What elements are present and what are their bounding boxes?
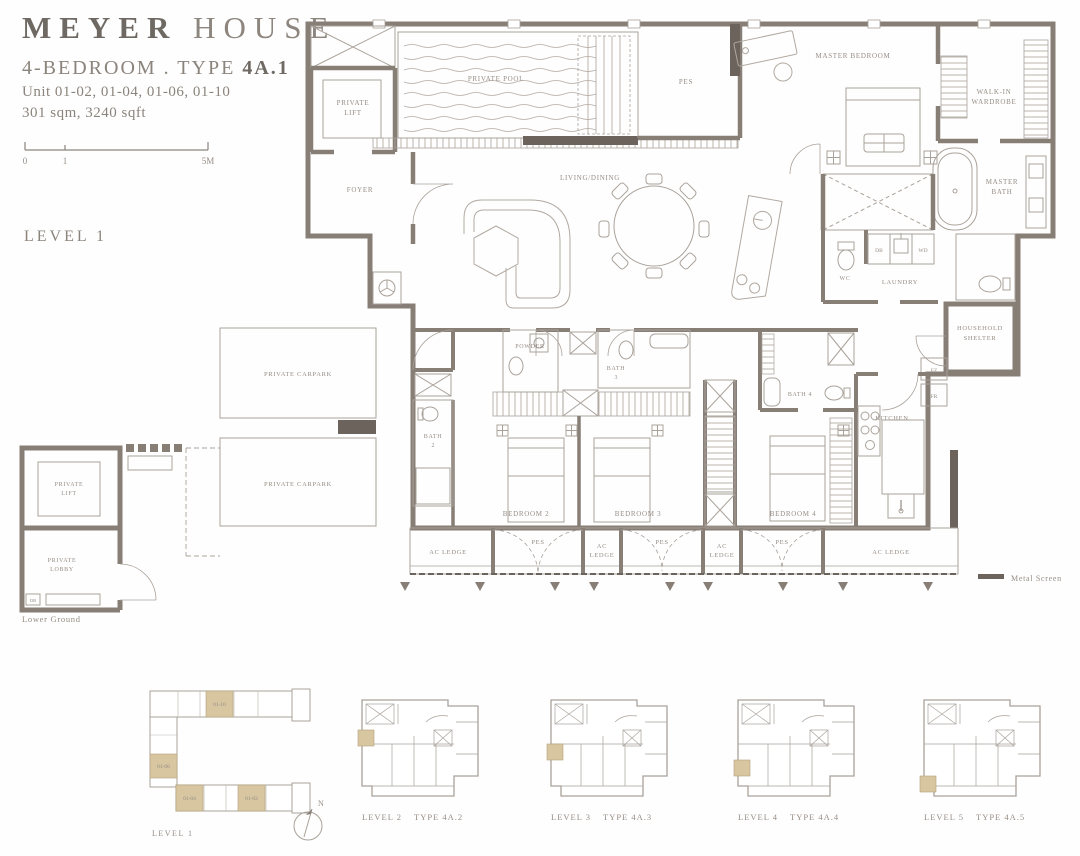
coffee-table-icon (474, 226, 518, 276)
label-pes-3: PES (775, 539, 788, 546)
floor-plan-page: MEYER HOUSE 4-BEDROOM . TYPE 4A.1 Unit 0… (0, 0, 1080, 856)
master-bedroom-door-arc (790, 144, 820, 174)
room-label-household-1: HOUSEHOLD (957, 325, 1003, 332)
unit-numbers: Unit 01-02, 01-04, 01-06, 01-10 (22, 84, 230, 101)
unit-area: 301 sqm, 3240 sqft (22, 105, 146, 122)
label-ac-2b: LEDGE (590, 552, 615, 559)
kitchen-door-arc (882, 374, 918, 410)
mini-2-level: LEVEL 2 (362, 812, 402, 822)
label-carpark-2: PRIVATE CARPARK (264, 481, 332, 488)
entry-closet (373, 272, 401, 304)
scale-bar: 0 1 5M (22, 138, 222, 172)
unit-type-prefix: 4-BEDROOM . TYPE (22, 57, 242, 79)
label-ac-3a: AC (717, 543, 727, 550)
label-lg-lift-2: LIFT (61, 491, 76, 497)
bottom-band-dividers (493, 528, 823, 574)
room-label-pes-top: PES (679, 78, 693, 86)
powder-room (503, 330, 558, 392)
room-label-master-bath-2: BATH (991, 188, 1012, 196)
bath4-shelf (762, 334, 774, 374)
mini-3-level: LEVEL 3 (551, 812, 591, 822)
room-label-bath3-1: BATH (607, 366, 625, 372)
unit-type-title: 4-BEDROOM . TYPE 4A.1 (22, 57, 290, 80)
lg-lobby-door-arc (120, 564, 156, 600)
second-wc (956, 234, 1015, 300)
closet-walls (823, 174, 933, 230)
label-lg-lobby-2: LOBBY (50, 567, 74, 573)
mini-5-unit-marker (920, 776, 936, 792)
mini-2-type: TYPE 4A.2 (414, 812, 463, 822)
closet-shaft (823, 174, 933, 230)
room-label-walk-in-2: WARDROBE (972, 98, 1017, 106)
label-wd: WD (918, 248, 927, 254)
lg-console (128, 456, 172, 470)
label-db: DB (875, 248, 883, 254)
label-lg-lobby-1: PRIVATE (48, 558, 77, 564)
band-shaft (563, 390, 598, 416)
powder-shaft (570, 332, 596, 354)
north-label: N (318, 799, 324, 808)
key-unit-01-04: 01-04 (183, 796, 196, 802)
master-bed-icon (846, 88, 920, 166)
wardrobe-unit-left (941, 56, 967, 118)
label-fr: FR (931, 394, 938, 400)
dining-table-icon (599, 174, 709, 278)
scale-tick-1: 1 (63, 156, 68, 166)
room-label-master-bedroom: MASTER BEDROOM (816, 52, 891, 60)
laundry-walls (823, 230, 938, 302)
mini-5-level: LEVEL 5 (924, 812, 964, 822)
desk-icon (734, 31, 798, 67)
lg-lift-cabin (38, 462, 100, 516)
room-label-master-bath-1: MASTER (986, 178, 1019, 186)
bath4-walls (760, 330, 858, 410)
mini-plan-level-3: LEVEL 3 TYPE 4A.3 (545, 692, 680, 832)
mini-3-type: TYPE 4A.3 (603, 812, 652, 822)
services-column (705, 380, 735, 526)
mini-4-level: LEVEL 4 (738, 812, 778, 822)
mini-plan-level-2: LEVEL 2 TYPE 4A.2 (356, 692, 491, 832)
bed4-icon (770, 436, 825, 521)
wc-toilet-icon (838, 242, 854, 270)
console-icon (731, 196, 783, 304)
lg-bench (26, 594, 100, 605)
mini-3-unit-marker (547, 744, 563, 760)
bedroom-divider-walls (453, 400, 579, 528)
key-unit-01-06: 01-06 (157, 764, 170, 770)
label-pes-2: PES (655, 539, 668, 546)
lower-ground-plan: PRIVATE CARPARK PRIVATE CARPARK PRIVATE … (10, 320, 405, 625)
lg-hatch-squares (126, 444, 182, 452)
room-label-bath2-1: BATH (424, 434, 442, 440)
room-label-laundry: LAUNDRY (882, 279, 918, 286)
key-plan: 01-10 01-06 01-04 01-02 LEVEL 1 N (138, 683, 338, 853)
room-label-foyer: FOYER (347, 186, 373, 194)
metal-screen-segment-pool (523, 136, 638, 145)
room-label-walk-in-1: WALK-IN (977, 88, 1012, 96)
mini-4-unit-marker (734, 760, 750, 776)
room-label-bath4: BATH 4 (788, 392, 812, 398)
pes-curtain-arcs (493, 530, 823, 573)
bedroom2-wardrobe (493, 392, 563, 416)
metal-screen-segment-kitchen (950, 450, 958, 528)
scale-tick-0: 0 (23, 156, 28, 166)
key-unit-01-02: 01-02 (245, 796, 258, 802)
desk-chair-icon (774, 63, 792, 81)
room-label-bedroom4: BEDROOM 4 (770, 510, 817, 518)
bath4-shaft (828, 333, 854, 365)
label-ac-ledge-1: AC LEDGE (429, 549, 467, 556)
label-ac-3b: LEDGE (710, 552, 735, 559)
hob-icon (858, 406, 880, 456)
room-label-private-lift-1: PRIVATE (337, 99, 370, 107)
wardrobe-unit-right (1024, 40, 1048, 138)
label-lg-lift-1: PRIVATE (55, 482, 84, 488)
room-label-powder: POWDER (515, 344, 545, 350)
label-lg-db: DB (30, 598, 36, 603)
label-carpark-1: PRIVATE CARPARK (264, 371, 332, 378)
shaft-icon (311, 26, 395, 68)
room-label-bedroom3: BEDROOM 3 (615, 510, 662, 518)
carpark-gate (338, 420, 376, 434)
label-ac-ledge-4: AC LEDGE (872, 549, 910, 556)
room-label-living-dining: LIVING/DINING (560, 174, 620, 182)
mini-2-unit-marker (358, 730, 374, 746)
level-label: LEVEL 1 (24, 228, 107, 246)
sofa-icon (464, 200, 570, 308)
room-label-wc: WC (839, 276, 850, 282)
room-label-private-pool: PRIVATE POOL (468, 75, 524, 83)
scale-tick-5m: 5M (202, 156, 215, 166)
bedroom3-wardrobe (598, 392, 690, 416)
lg-link-dashed (186, 448, 220, 556)
key-unit-01-10: 01-10 (213, 702, 226, 708)
brand-part-1: MEYER (22, 10, 177, 45)
private-pool (398, 32, 638, 138)
key-plan-level-label: LEVEL 1 (152, 829, 194, 838)
label-fz: FZ (931, 368, 938, 374)
room-label-household-2: SHELTER (964, 335, 997, 342)
room-label-bath3-2: 3 (615, 375, 618, 381)
mini-4-type: TYPE 4A.4 (790, 812, 839, 822)
kitchen-walls (856, 374, 928, 528)
bath2-walls (413, 330, 453, 370)
mini-5-type: TYPE 4A.5 (976, 812, 1025, 822)
room-label-private-lift-2: LIFT (344, 109, 362, 117)
mini-plan-level-4: LEVEL 4 TYPE 4A.4 (732, 692, 867, 832)
bath2-fixtures (413, 400, 453, 506)
column-markers (497, 425, 849, 436)
boundary-arrows (400, 582, 933, 591)
room-label-bath2-2: 2 (432, 443, 435, 449)
dining-chairs (599, 174, 709, 278)
legend-metal-screen: Metal Screen (1011, 574, 1062, 583)
mini-plan-level-5: LEVEL 5 TYPE 4A.5 (918, 692, 1053, 832)
metal-screen-swatch (978, 574, 1004, 579)
bath2-shaft (415, 374, 451, 396)
room-label-kitchen: KITCHEN (875, 415, 908, 422)
room-label-bedroom2: BEDROOM 2 (503, 510, 550, 518)
pool-water-icon (404, 45, 596, 132)
bathtub-icon (933, 148, 977, 230)
foyer-door-arc (413, 184, 453, 224)
label-pes-1: PES (531, 539, 544, 546)
bath3-room (598, 330, 690, 388)
bath2-door-arc (413, 330, 453, 370)
kitchen-island (882, 420, 924, 518)
vanity-icon (1026, 156, 1046, 228)
lower-ground-caption: Lower Ground (22, 614, 81, 624)
label-ac-2a: AC (597, 543, 607, 550)
